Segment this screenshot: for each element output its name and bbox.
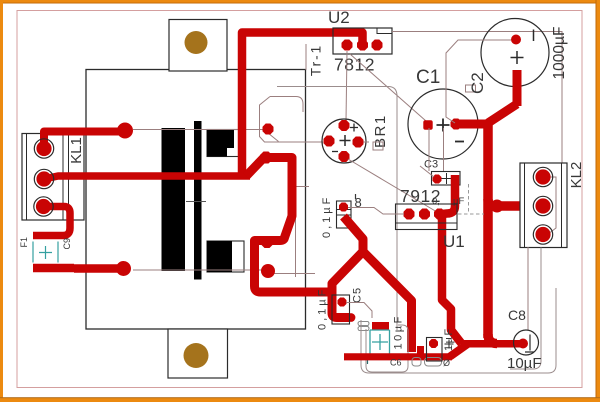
svg-text:C2: C2	[468, 72, 487, 94]
svg-text:C1: C1	[416, 67, 440, 88]
svg-text:U1: U1	[443, 232, 465, 251]
svg-text:KL2: KL2	[568, 162, 585, 189]
svg-text:U2: U2	[328, 8, 350, 27]
svg-text:10µF: 10µF	[507, 355, 542, 372]
svg-text:C8: C8	[508, 307, 526, 323]
svg-text:C3: C3	[424, 159, 438, 171]
svg-text:0,1µF: 0,1µF	[321, 195, 333, 238]
svg-text:Ø: Ø	[443, 358, 450, 368]
svg-text:BR1: BR1	[372, 114, 389, 148]
svg-text:Tr-1: Tr-1	[309, 44, 324, 76]
svg-text:10µF: 10µF	[393, 314, 405, 349]
svg-text:KL1: KL1	[68, 137, 85, 164]
svg-text:µF: µF	[453, 196, 464, 207]
svg-text:C6: C6	[390, 358, 402, 368]
svg-text:F1: F1	[19, 237, 29, 248]
svg-text:C9: C9	[62, 238, 72, 250]
svg-text:0,1µF: 0,1µF	[317, 287, 329, 330]
svg-text:C5: C5	[352, 287, 364, 303]
svg-text:1µF: 1µF	[443, 327, 455, 351]
svg-text:1000µF: 1000µF	[551, 27, 568, 80]
svg-text:0,: 0,	[432, 196, 440, 207]
